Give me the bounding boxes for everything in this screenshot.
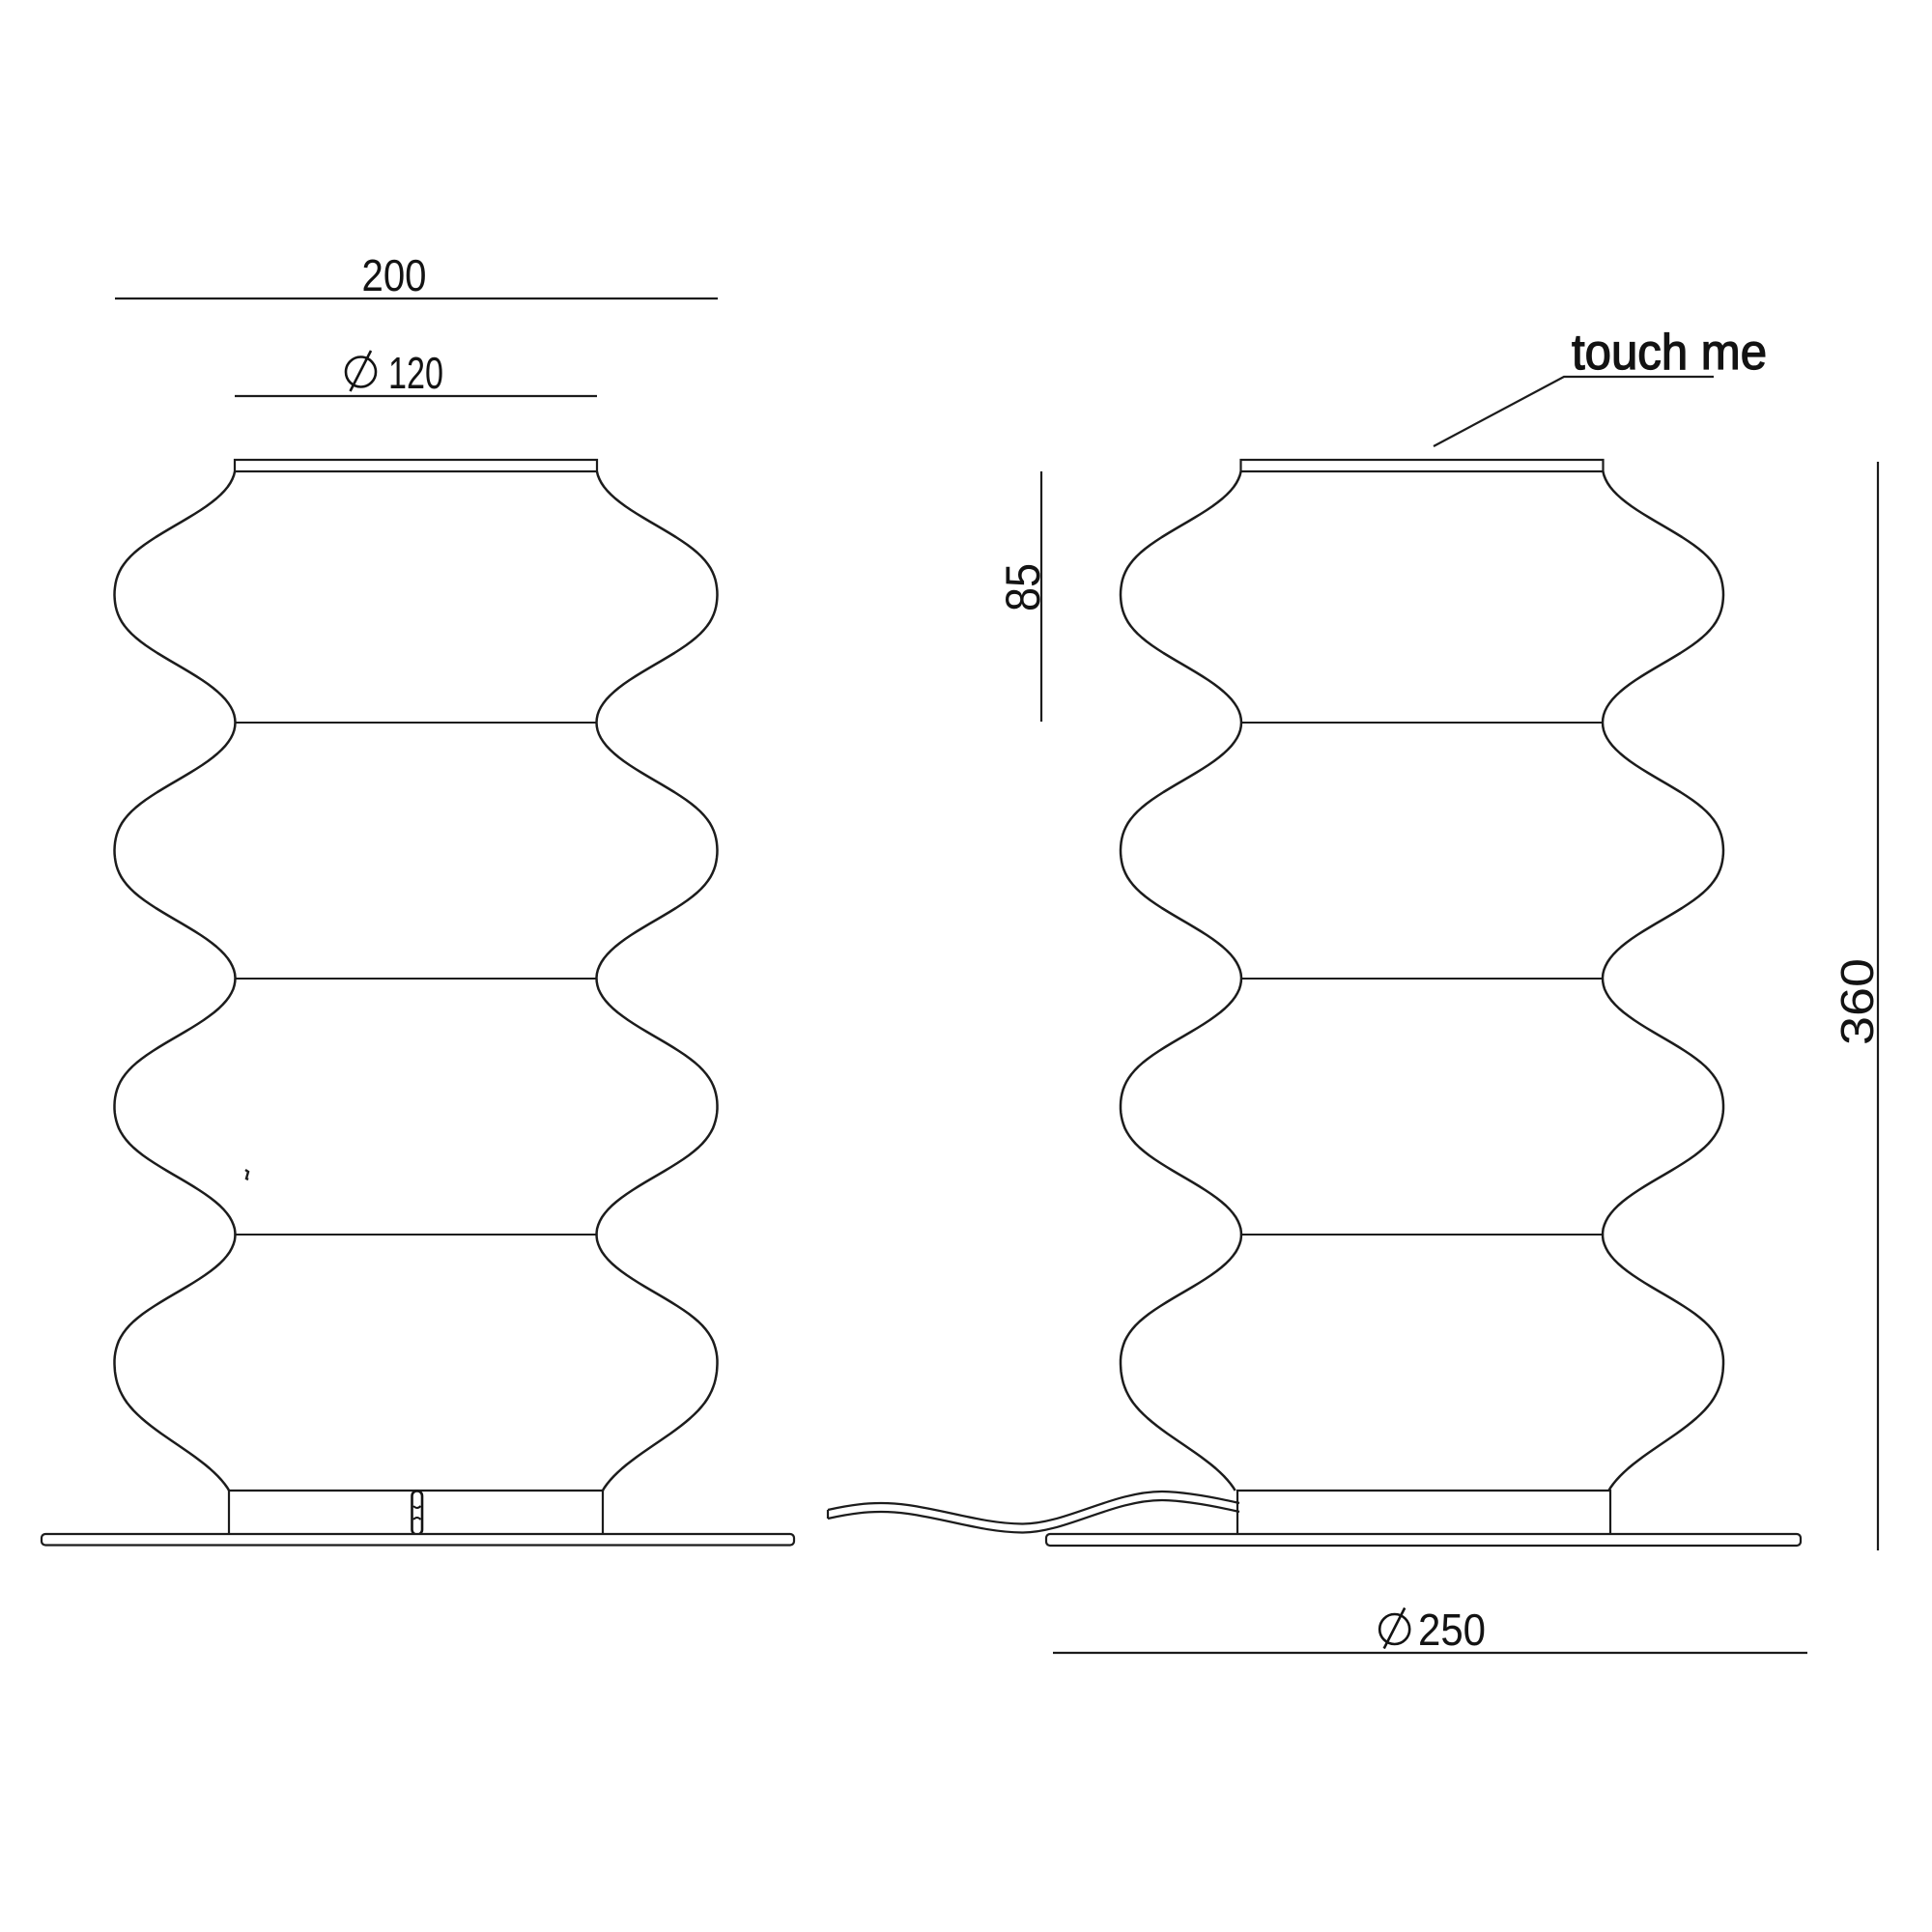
svg-text:85: 85 [996,563,1050,611]
svg-text:200: 200 [362,250,427,300]
svg-text:360: 360 [1833,958,1884,1045]
svg-text:250: 250 [1418,1605,1486,1655]
svg-text:120: 120 [388,348,443,398]
svg-text:touch me: touch me [1572,325,1767,381]
